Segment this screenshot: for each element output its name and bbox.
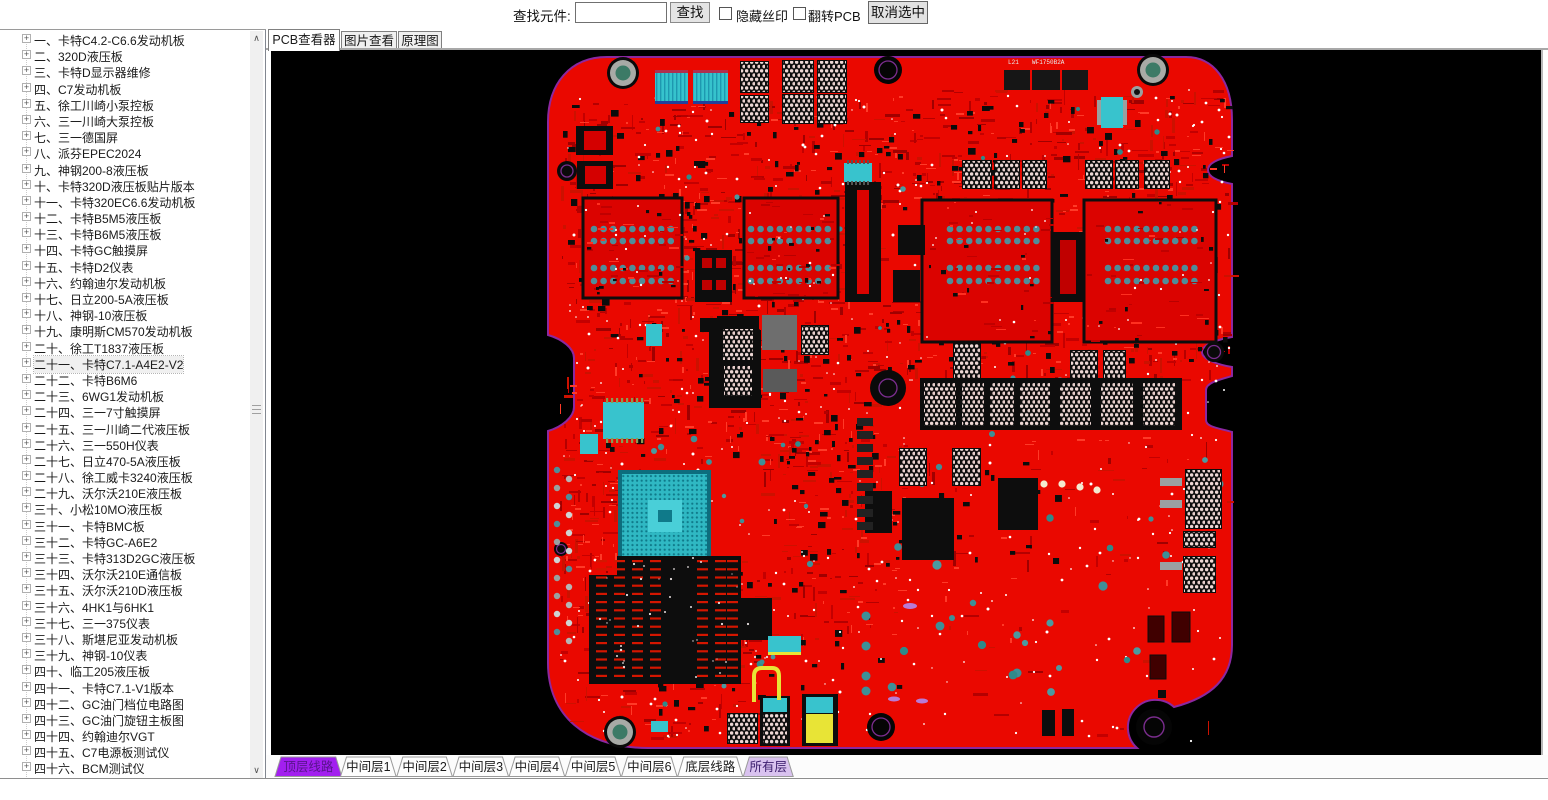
svg-text:中间层6: 中间层6 <box>627 759 672 774</box>
svg-text:WF1750B2A: WF1750B2A <box>1032 59 1065 66</box>
svg-text:底层线路: 底层线路 <box>685 759 736 774</box>
svg-text:所有层: 所有层 <box>749 760 787 774</box>
svg-text:L21: L21 <box>1008 59 1019 66</box>
svg-text:中间层2: 中间层2 <box>402 759 447 774</box>
svg-text:中间层5: 中间层5 <box>571 759 616 774</box>
svg-text:中间层4: 中间层4 <box>515 759 560 774</box>
svg-text:顶层线路: 顶层线路 <box>283 759 334 774</box>
svg-text:中间层3: 中间层3 <box>459 759 504 774</box>
svg-text:中间层1: 中间层1 <box>346 759 391 774</box>
